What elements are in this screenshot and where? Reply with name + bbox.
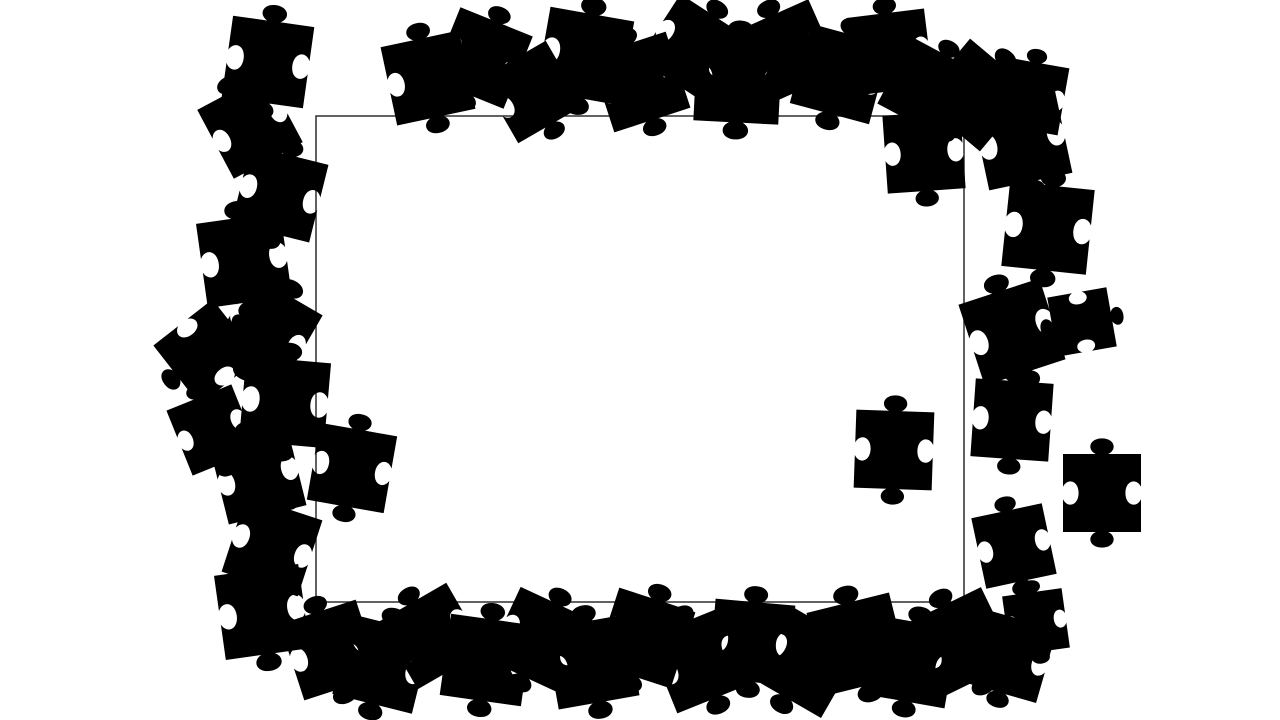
puzzle-piece[interactable] bbox=[969, 363, 1054, 477]
puzzle-game-screen bbox=[0, 0, 1280, 720]
puzzle-piece[interactable] bbox=[1000, 164, 1097, 291]
puzzle-canvas bbox=[0, 0, 1280, 720]
puzzle-board[interactable] bbox=[316, 116, 964, 602]
puzzle-piece[interactable] bbox=[968, 489, 1059, 603]
puzzle-piece[interactable] bbox=[1063, 438, 1141, 547]
